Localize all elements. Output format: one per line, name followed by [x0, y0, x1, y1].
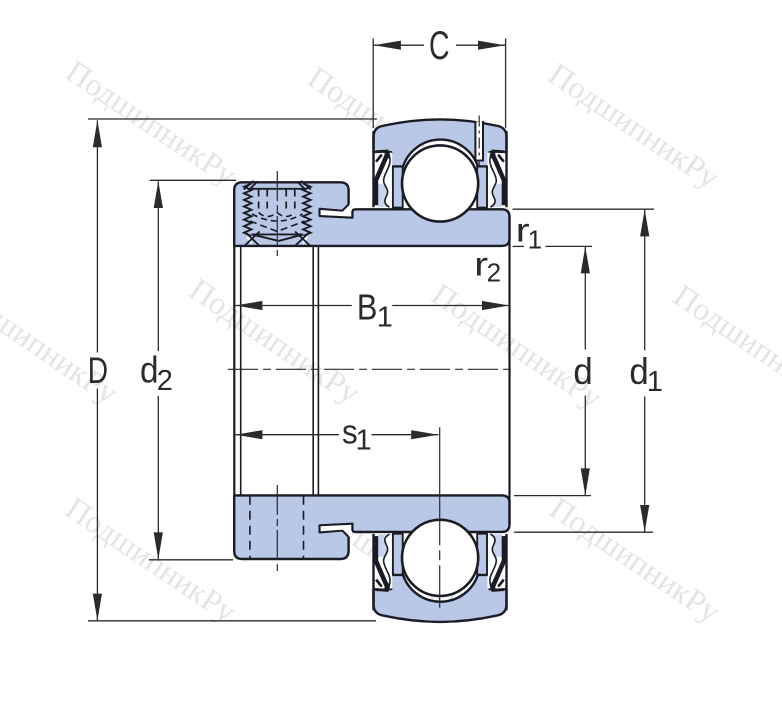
svg-text:C: C [429, 24, 450, 68]
svg-text:1: 1 [355, 424, 371, 456]
svg-text:1: 1 [377, 302, 393, 334]
svg-text:1: 1 [528, 224, 542, 254]
svg-text:D: D [88, 349, 108, 391]
svg-text:1: 1 [647, 366, 663, 398]
svg-text:2: 2 [487, 258, 501, 288]
svg-text:2: 2 [157, 365, 173, 397]
svg-text:d: d [573, 351, 592, 392]
svg-text:B: B [357, 288, 378, 328]
